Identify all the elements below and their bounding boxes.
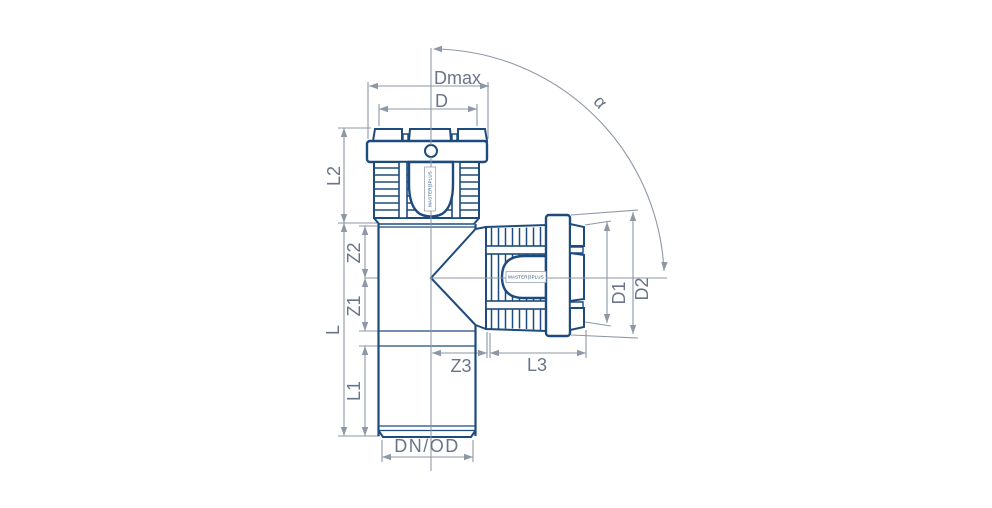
product-label-horizontal: MASTER|3PLUS [508,275,544,280]
label-l2: L2 [324,166,344,186]
label-z2: Z2 [344,242,364,263]
drawing-canvas: MASTER|3PLUS MASTER|3PLUS Dmax D L2 L Z2… [0,0,992,508]
socket-tab [373,129,402,141]
label-z1: Z1 [344,295,364,316]
dim-l3 [490,330,586,358]
socket-tab [458,129,487,141]
dim-z3 [432,332,487,358]
label-z3: Z3 [450,356,471,376]
socket-tab [409,129,451,141]
branch-tab [570,308,584,330]
label-l1: L1 [344,381,364,401]
label-alpha: α [590,91,612,112]
label-d2: D2 [632,277,652,300]
fitting [367,129,584,437]
main-pipe [379,224,476,437]
socket-post [399,162,407,218]
label-l: L [323,325,343,335]
label-dmax: Dmax [434,68,481,88]
dim-d1 [585,221,611,326]
label-dnod: DN/OD [394,436,460,456]
branch-collar-band [546,215,570,336]
product-label-vertical: MASTER|3PLUS [428,171,433,207]
label-d: D [435,91,448,111]
technical-drawing: MASTER|3PLUS MASTER|3PLUS Dmax D L2 L Z2… [0,0,992,508]
socket-screw [425,145,437,157]
dim-d [379,104,477,126]
branch-tab [570,224,584,246]
label-d1: D1 [609,281,629,304]
branch-tab [570,253,584,301]
label-l3: L3 [527,355,547,375]
